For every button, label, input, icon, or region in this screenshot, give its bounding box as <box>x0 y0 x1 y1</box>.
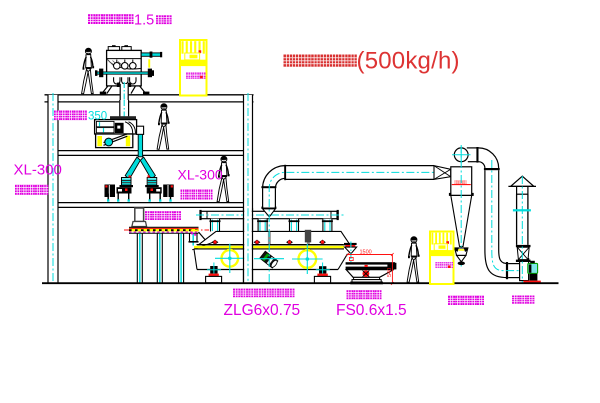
svg-text:(500kg/h): (500kg/h) <box>357 48 460 75</box>
svg-text:350: 350 <box>88 111 107 123</box>
svg-text:XL-300: XL-300 <box>14 162 62 179</box>
svg-text:XL-300: XL-300 <box>178 167 223 183</box>
svg-text:1500: 1500 <box>360 250 372 256</box>
svg-text:540: 540 <box>387 268 393 277</box>
svg-text:1.5: 1.5 <box>134 13 154 29</box>
svg-text:FS0.6x1.5: FS0.6x1.5 <box>336 302 407 319</box>
svg-text:ZLG6x0.75: ZLG6x0.75 <box>224 302 301 319</box>
